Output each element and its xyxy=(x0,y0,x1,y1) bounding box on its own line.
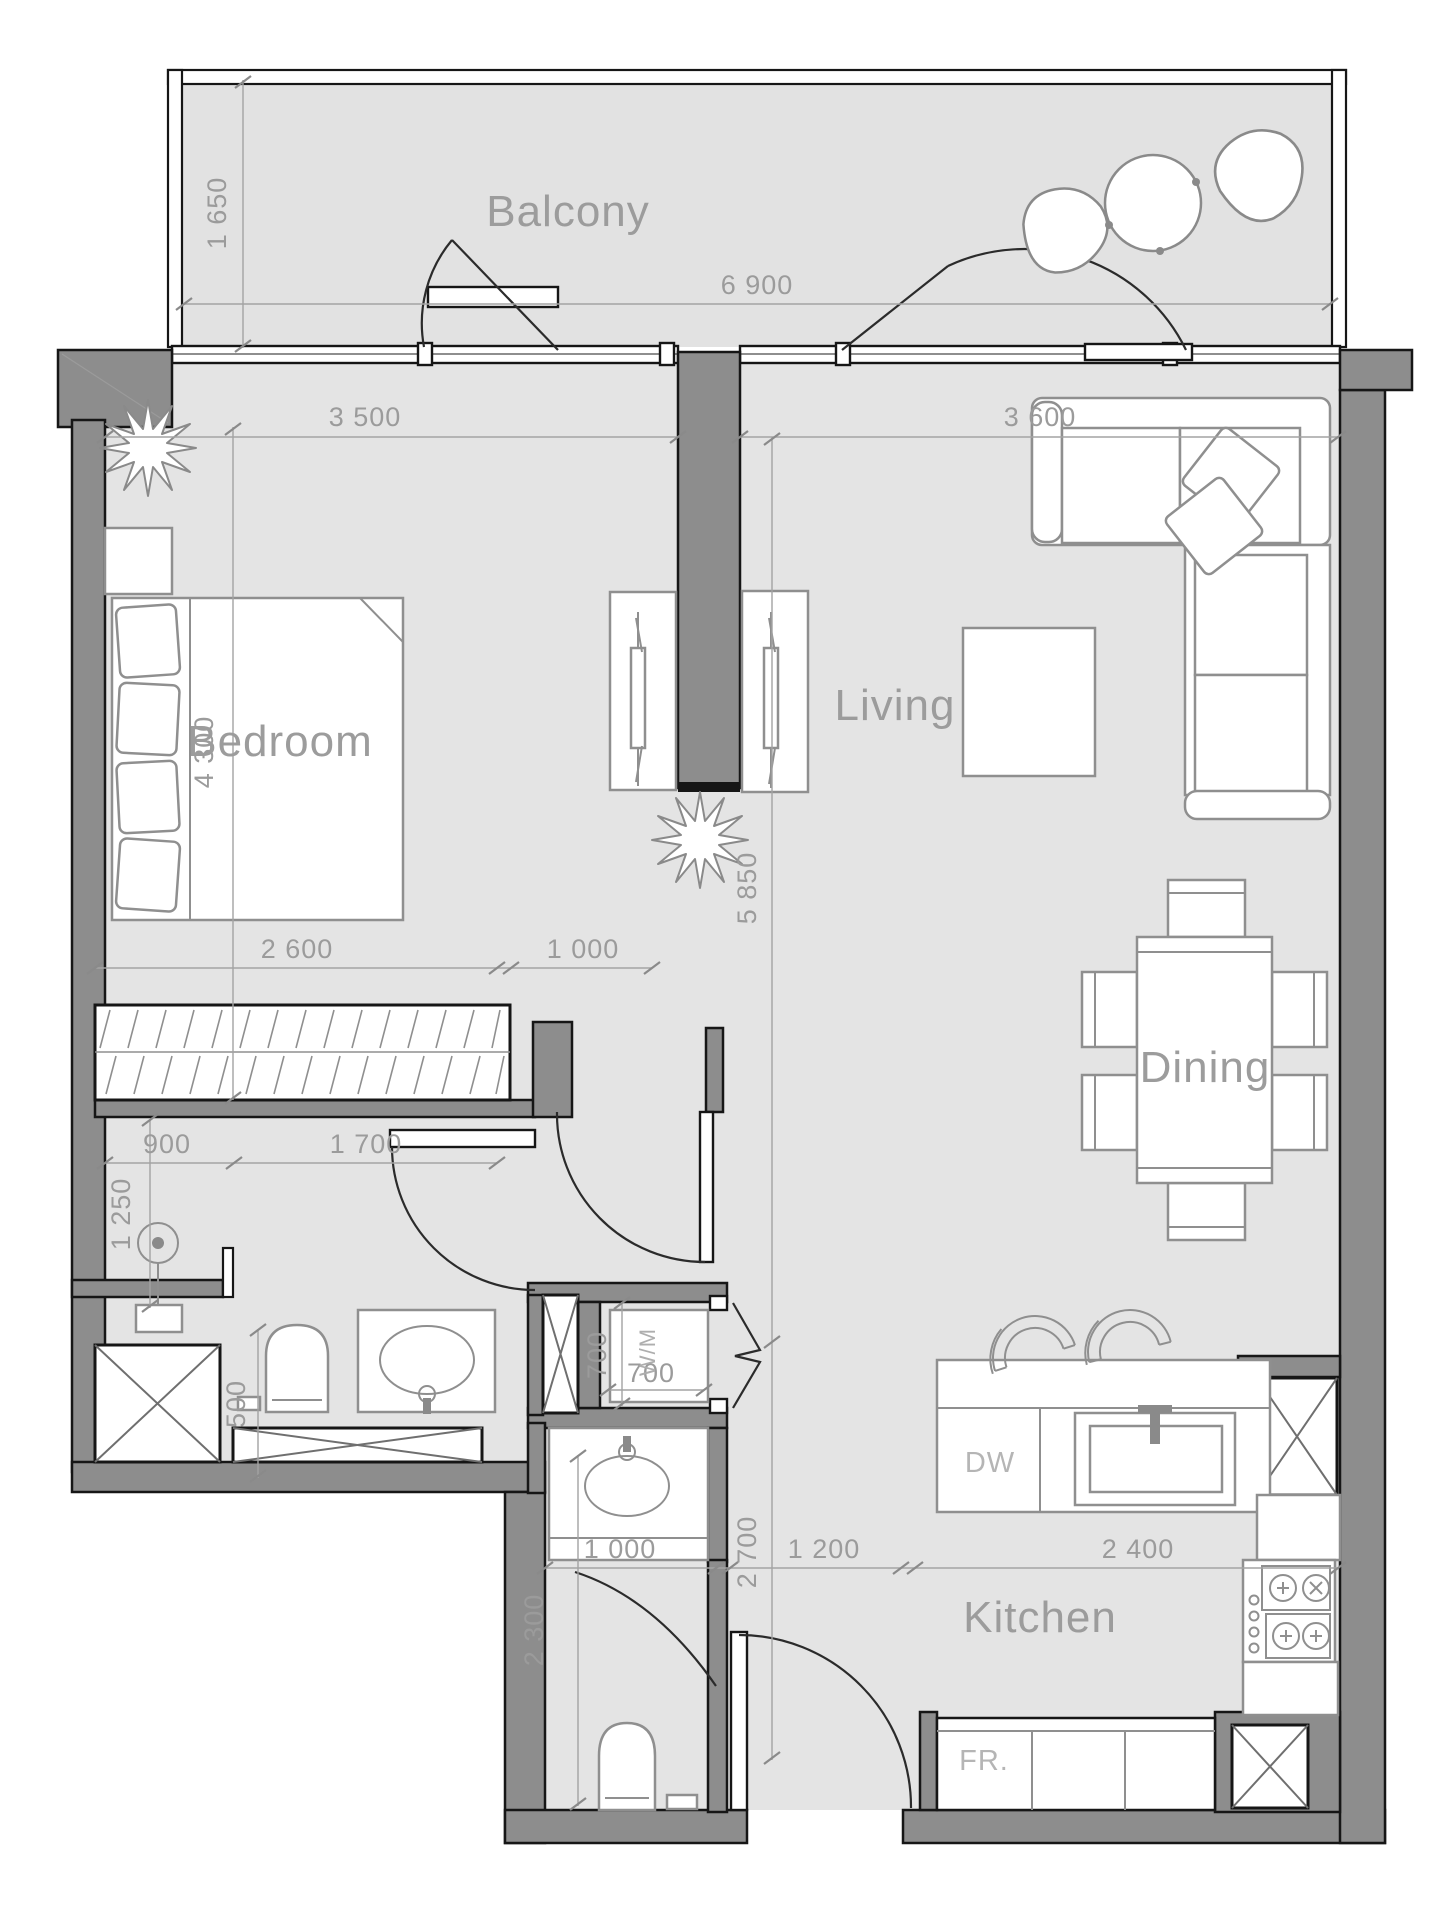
wall-center-column xyxy=(678,352,740,788)
dim-wardrobe-width: 2 600 xyxy=(261,934,334,964)
wall-corridor-stub xyxy=(706,1028,723,1112)
duct-bathroom xyxy=(233,1428,482,1462)
dim-balcony-width: 6 900 xyxy=(721,270,794,300)
dining-chair xyxy=(1168,1183,1245,1240)
entry-door-leaf xyxy=(731,1632,747,1810)
shaft-kitchen-bottom xyxy=(1232,1725,1308,1808)
shaft-bathroom xyxy=(95,1345,220,1462)
plant-pot-icon xyxy=(1105,155,1201,251)
wall-powder-right xyxy=(708,1428,727,1562)
dining-chair xyxy=(1272,972,1327,1047)
bath-door-jamb xyxy=(223,1248,233,1297)
label-washing-machine: W/M xyxy=(635,1328,660,1376)
wall-kitchen-bottom xyxy=(903,1810,1385,1843)
tv-unit-left xyxy=(610,592,676,790)
dining-chair xyxy=(1272,1075,1327,1150)
pillow xyxy=(116,682,180,755)
floor-plan-canvas: 1 650 6 900 3 500 3 600 4 300 5 850 2 60… xyxy=(0,0,1438,1920)
dim-entry-left: 1 000 xyxy=(584,1534,657,1564)
wc-toilet xyxy=(599,1723,655,1810)
window-mullion xyxy=(660,343,674,365)
label-kitchen: Kitchen xyxy=(963,1593,1117,1642)
dim-living-depth: 5 850 xyxy=(732,852,762,925)
dim-wc-depth: 2 300 xyxy=(519,1594,549,1667)
wall-stub-topright xyxy=(1340,350,1412,390)
dim-hall-left: 900 xyxy=(143,1129,191,1159)
bath-lobby-door-leaf xyxy=(390,1130,535,1147)
wm-jamb-top xyxy=(710,1296,727,1310)
dining-chair xyxy=(1082,1075,1137,1150)
dim-living-width: 3 600 xyxy=(1004,402,1077,432)
label-dishwasher: DW xyxy=(965,1447,1015,1479)
label-bedroom: Bedroom xyxy=(187,717,373,766)
dim-wardrobe-gap: 1 000 xyxy=(547,934,620,964)
coffee-table xyxy=(963,628,1095,776)
nightstand xyxy=(105,528,172,594)
dining-chair xyxy=(1082,972,1137,1047)
faucet-icon xyxy=(1150,1408,1160,1444)
wardrobe xyxy=(95,1005,510,1100)
balcony-wall-right xyxy=(1332,70,1346,347)
dim-bedroom-width: 3 500 xyxy=(329,402,402,432)
pillow xyxy=(116,838,181,912)
wall-counter-stub xyxy=(920,1712,937,1810)
bath-vanity xyxy=(358,1310,495,1414)
balcony-wall-top xyxy=(168,70,1346,84)
kitchen-island xyxy=(937,1360,1270,1512)
pillow xyxy=(116,604,181,678)
balcony-door-right-leaf xyxy=(1085,344,1192,360)
wall-center-column-cap xyxy=(678,782,740,792)
paper-holder xyxy=(667,1795,697,1809)
wall-wc-right xyxy=(708,1560,727,1812)
bedroom-door-leaf xyxy=(700,1112,713,1262)
dim-kitchen-run: 2 400 xyxy=(1102,1534,1175,1564)
dim-entry-mid: 1 200 xyxy=(788,1534,861,1564)
wm-jamb-bottom xyxy=(710,1399,727,1413)
faucet-icon xyxy=(1138,1405,1172,1413)
dim-balcony-depth: 1 650 xyxy=(202,177,232,250)
wall-wc-left xyxy=(505,1492,545,1843)
dim-hall-right: 1 700 xyxy=(330,1129,403,1159)
wall-left-exterior xyxy=(72,420,105,1472)
wall-right-exterior xyxy=(1340,390,1385,1843)
wall-wm-left xyxy=(528,1295,543,1415)
wall-wc-bottom xyxy=(505,1810,747,1843)
tv-unit-right xyxy=(742,591,808,792)
wall-wardrobe-cap xyxy=(533,1022,572,1117)
label-fridge: FR. xyxy=(959,1745,1009,1777)
wall-powder-left xyxy=(528,1423,545,1493)
kitchen-counter xyxy=(1243,1662,1338,1715)
label-living: Living xyxy=(835,681,956,730)
pillow xyxy=(116,760,180,833)
wall-bath-top xyxy=(72,1280,223,1297)
window-mullion xyxy=(418,343,432,365)
balcony-wall-left xyxy=(168,70,182,347)
wall-below-wardrobe xyxy=(95,1100,535,1117)
dim-kitchen-depth: 2 700 xyxy=(732,1516,762,1589)
dim-bath-lobby: 1 250 xyxy=(106,1178,136,1251)
wall-bottom-left xyxy=(72,1462,545,1492)
stove xyxy=(1243,1560,1335,1662)
toilet xyxy=(266,1325,328,1412)
label-balcony: Balcony xyxy=(486,187,650,236)
dim-bath-clear: 500 xyxy=(221,1380,251,1428)
dining-chair xyxy=(1168,880,1245,937)
floor-plan-page: 1 650 6 900 3 500 3 600 4 300 5 850 2 60… xyxy=(0,0,1438,1920)
label-dining: Dining xyxy=(1140,1043,1271,1092)
shaft-wm xyxy=(543,1295,578,1413)
dim-wm-depth: 700 xyxy=(582,1331,612,1379)
kitchen-counter xyxy=(1257,1495,1340,1560)
